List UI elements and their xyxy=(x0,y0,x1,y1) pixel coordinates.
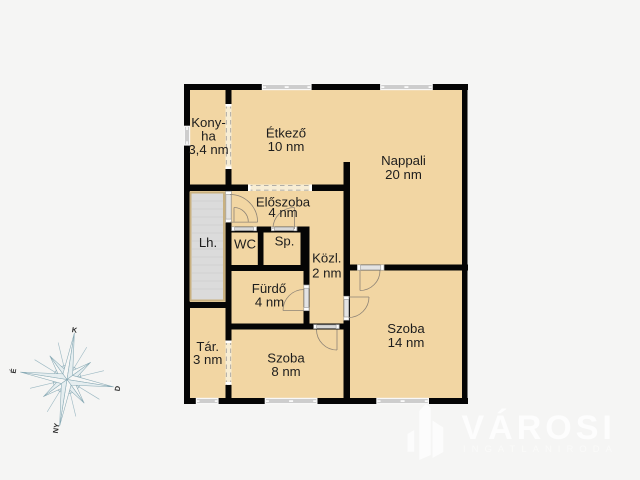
svg-text:WC: WC xyxy=(234,237,256,252)
svg-text:INGATLANIRODA: INGATLANIRODA xyxy=(463,444,618,455)
svg-text:Lh.: Lh. xyxy=(199,235,217,250)
svg-text:Közl.: Közl. xyxy=(312,251,341,266)
svg-text:10 nm: 10 nm xyxy=(268,139,305,154)
svg-text:NY: NY xyxy=(51,422,61,434)
svg-text:Szoba: Szoba xyxy=(387,321,425,336)
svg-text:4 nm: 4 nm xyxy=(255,295,284,310)
svg-text:Sp.: Sp. xyxy=(275,234,295,249)
svg-text:3 nm: 3 nm xyxy=(193,352,222,367)
svg-text:20 nm: 20 nm xyxy=(385,167,422,182)
svg-text:4 nm: 4 nm xyxy=(268,205,297,220)
svg-text:3,4 nm: 3,4 nm xyxy=(188,142,228,157)
svg-text:Nappali: Nappali xyxy=(381,153,426,168)
svg-text:14 nm: 14 nm xyxy=(388,335,425,350)
svg-text:8 nm: 8 nm xyxy=(271,364,300,379)
svg-text:VÁROSI: VÁROSI xyxy=(462,409,616,447)
svg-text:2 nm: 2 nm xyxy=(312,266,341,281)
